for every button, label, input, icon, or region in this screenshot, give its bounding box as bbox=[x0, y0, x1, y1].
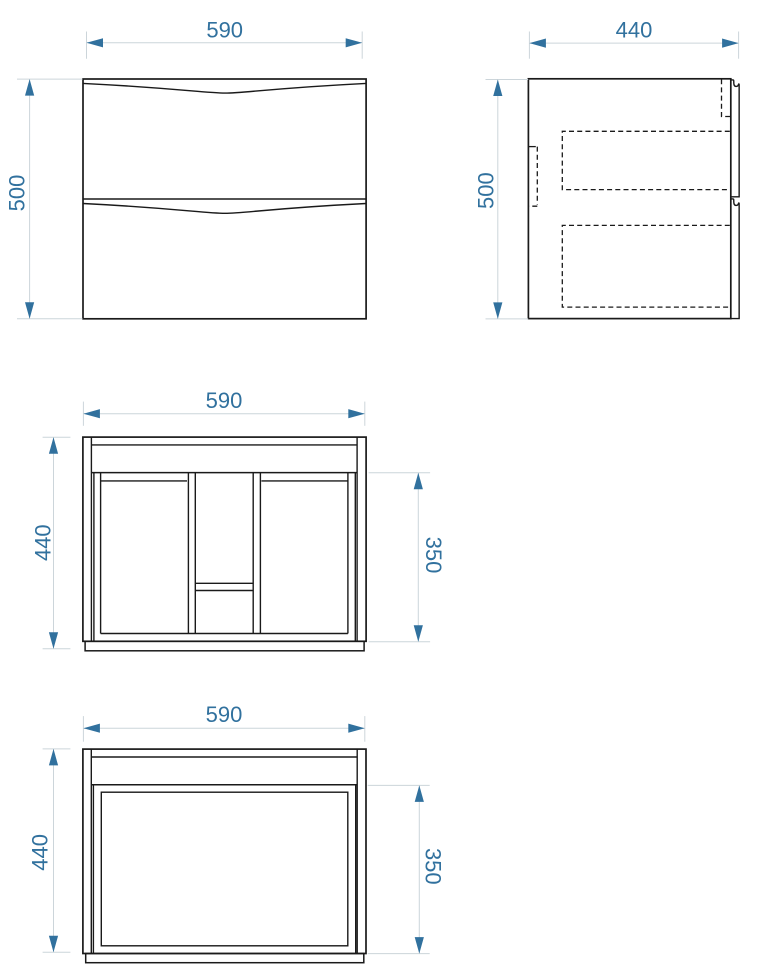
svg-text:440: 440 bbox=[30, 524, 55, 561]
svg-text:350: 350 bbox=[420, 848, 445, 885]
svg-text:590: 590 bbox=[206, 388, 243, 413]
svg-text:350: 350 bbox=[421, 537, 446, 574]
svg-text:500: 500 bbox=[4, 175, 29, 212]
svg-text:500: 500 bbox=[473, 172, 498, 209]
svg-text:590: 590 bbox=[206, 702, 243, 727]
svg-text:590: 590 bbox=[206, 18, 243, 43]
svg-text:440: 440 bbox=[616, 18, 653, 43]
svg-text:440: 440 bbox=[28, 834, 53, 871]
